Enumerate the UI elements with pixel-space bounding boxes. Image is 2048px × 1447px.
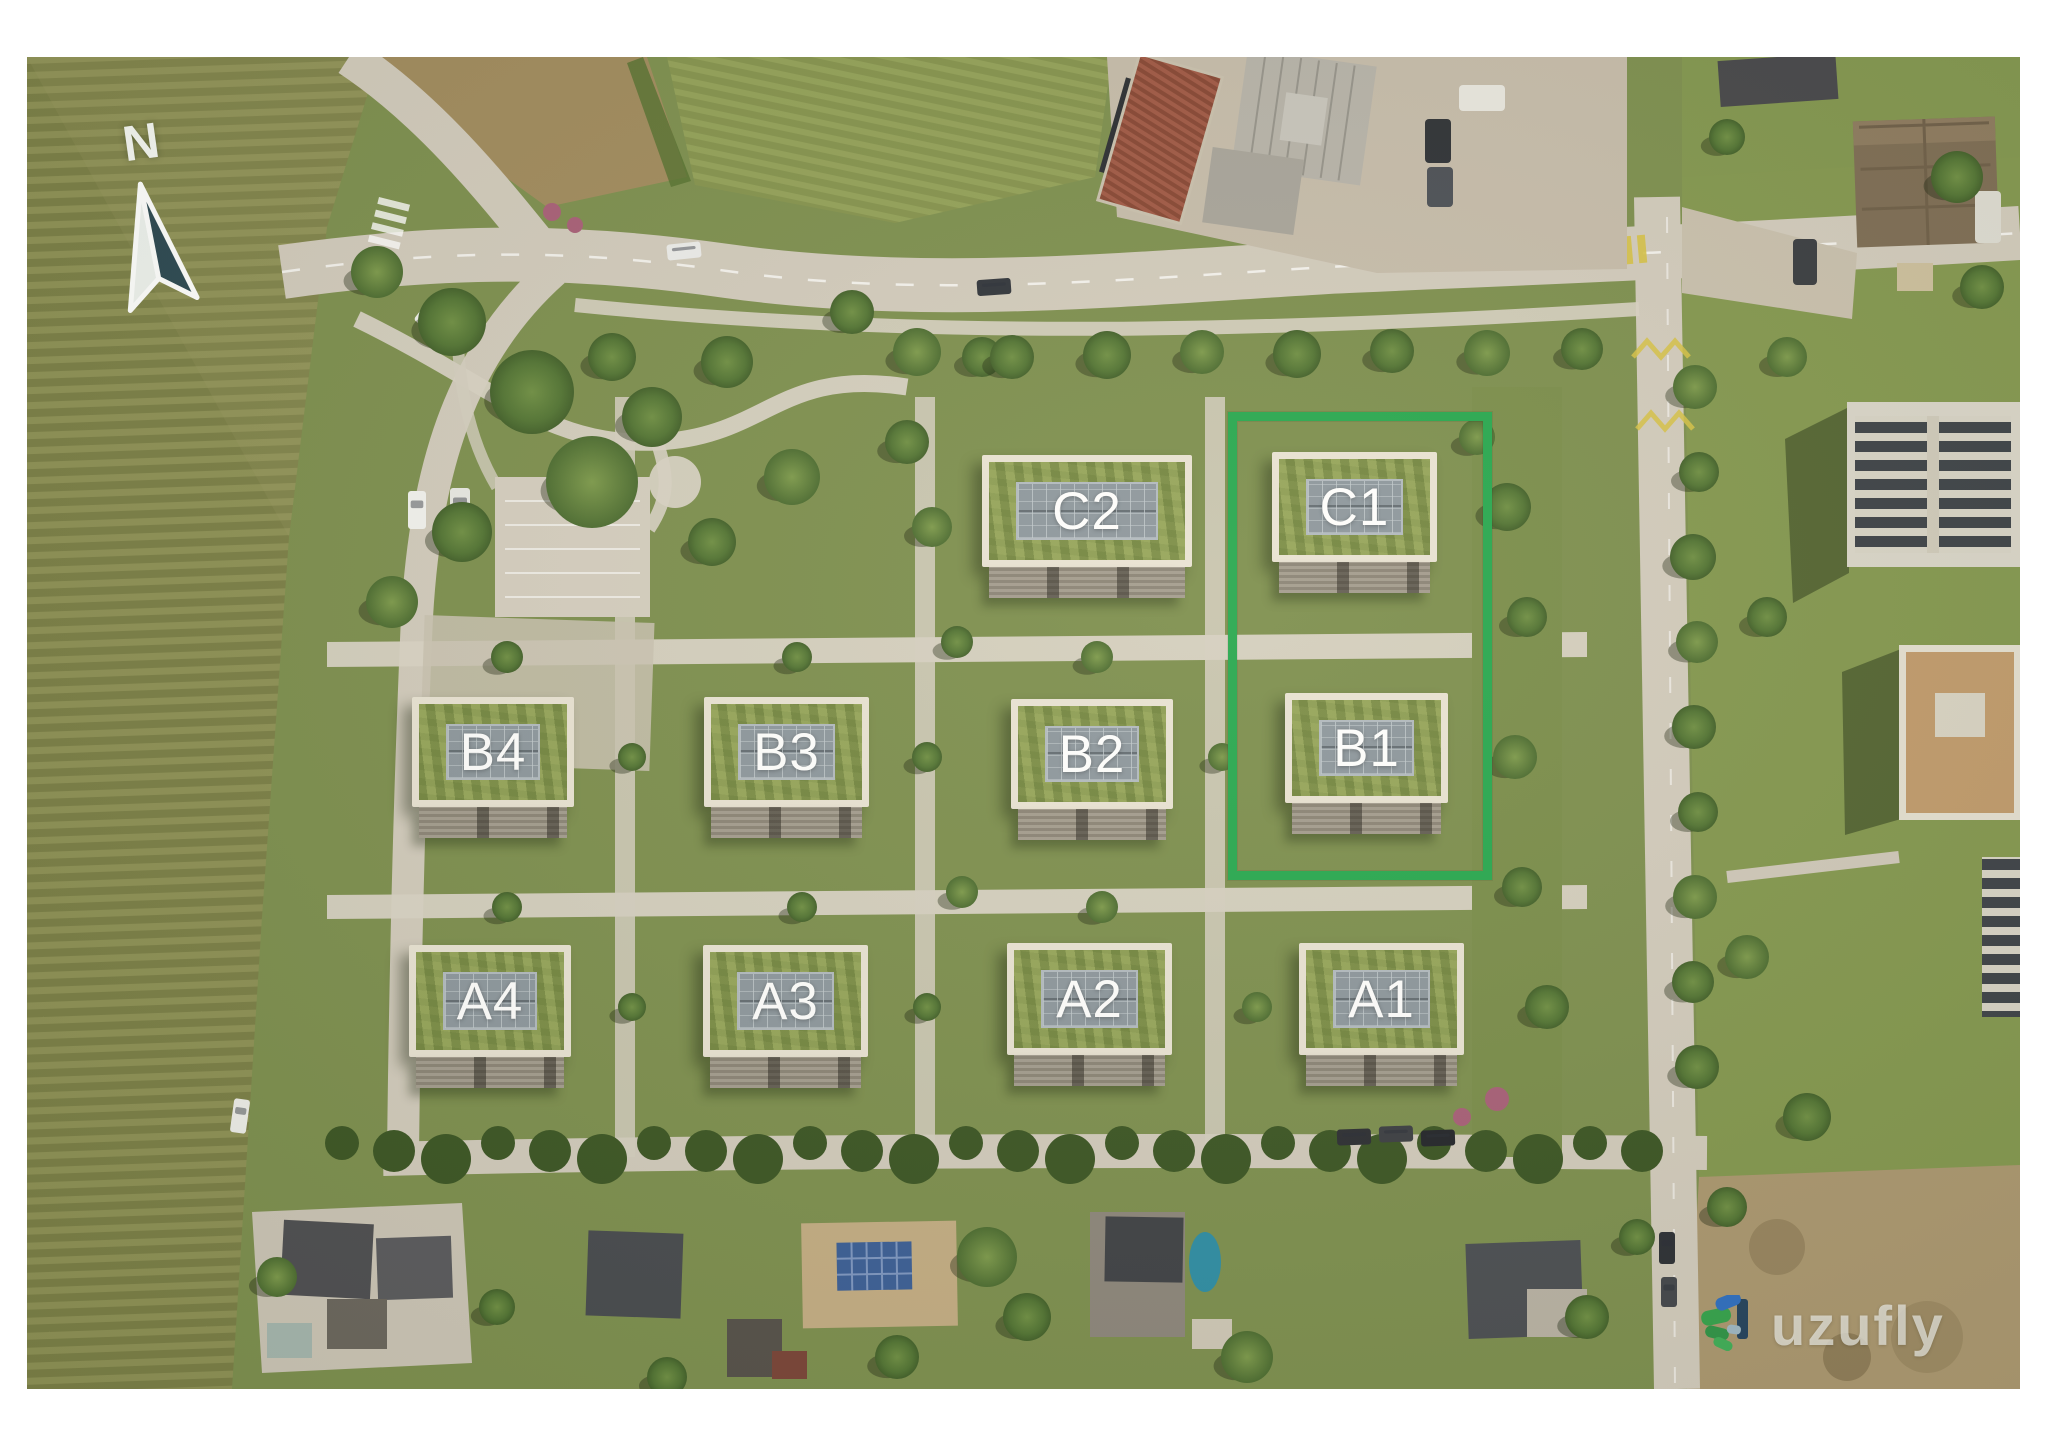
- north-label: N: [119, 111, 163, 173]
- uzufly-watermark: uzufly: [1699, 1293, 1945, 1358]
- north-arrow: N: [105, 105, 225, 315]
- north-arrow-icon: [93, 171, 214, 327]
- building-label: B2: [1011, 699, 1173, 809]
- building-label: B3: [704, 697, 869, 807]
- building-label: B4: [412, 697, 574, 807]
- building-a2[interactable]: A2: [1007, 943, 1172, 1055]
- building-b2[interactable]: B2: [1011, 699, 1173, 809]
- site-plan-page: C2C1B4B3B2B1A4A3A2A1 N uzufly: [0, 0, 2048, 1447]
- building-b4[interactable]: B4: [412, 697, 574, 807]
- aerial-photo: C2C1B4B3B2B1A4A3A2A1 N uzufly: [27, 57, 2020, 1389]
- building-facade: [1014, 1055, 1165, 1086]
- building-a1[interactable]: A1: [1299, 943, 1464, 1055]
- building-facade: [419, 807, 567, 838]
- building-label: A1: [1299, 943, 1464, 1055]
- building-facade: [989, 567, 1185, 598]
- building-a4[interactable]: A4: [409, 945, 571, 1057]
- building-label: C2: [982, 455, 1192, 567]
- building-facade: [710, 1057, 861, 1088]
- building-facade: [711, 807, 862, 838]
- building-facade: [416, 1057, 564, 1088]
- building-facade: [1306, 1055, 1457, 1086]
- building-facade: [1018, 809, 1166, 840]
- building-label: A4: [409, 945, 571, 1057]
- building-c2[interactable]: C2: [982, 455, 1192, 567]
- building-a3[interactable]: A3: [703, 945, 868, 1057]
- uzufly-logo-icon: [1699, 1295, 1763, 1357]
- highlight-rectangle-c1-b1: [1228, 412, 1492, 880]
- building-label: A2: [1007, 943, 1172, 1055]
- building-label: A3: [703, 945, 868, 1057]
- uzufly-logo-text: uzufly: [1771, 1293, 1945, 1358]
- building-b3[interactable]: B3: [704, 697, 869, 807]
